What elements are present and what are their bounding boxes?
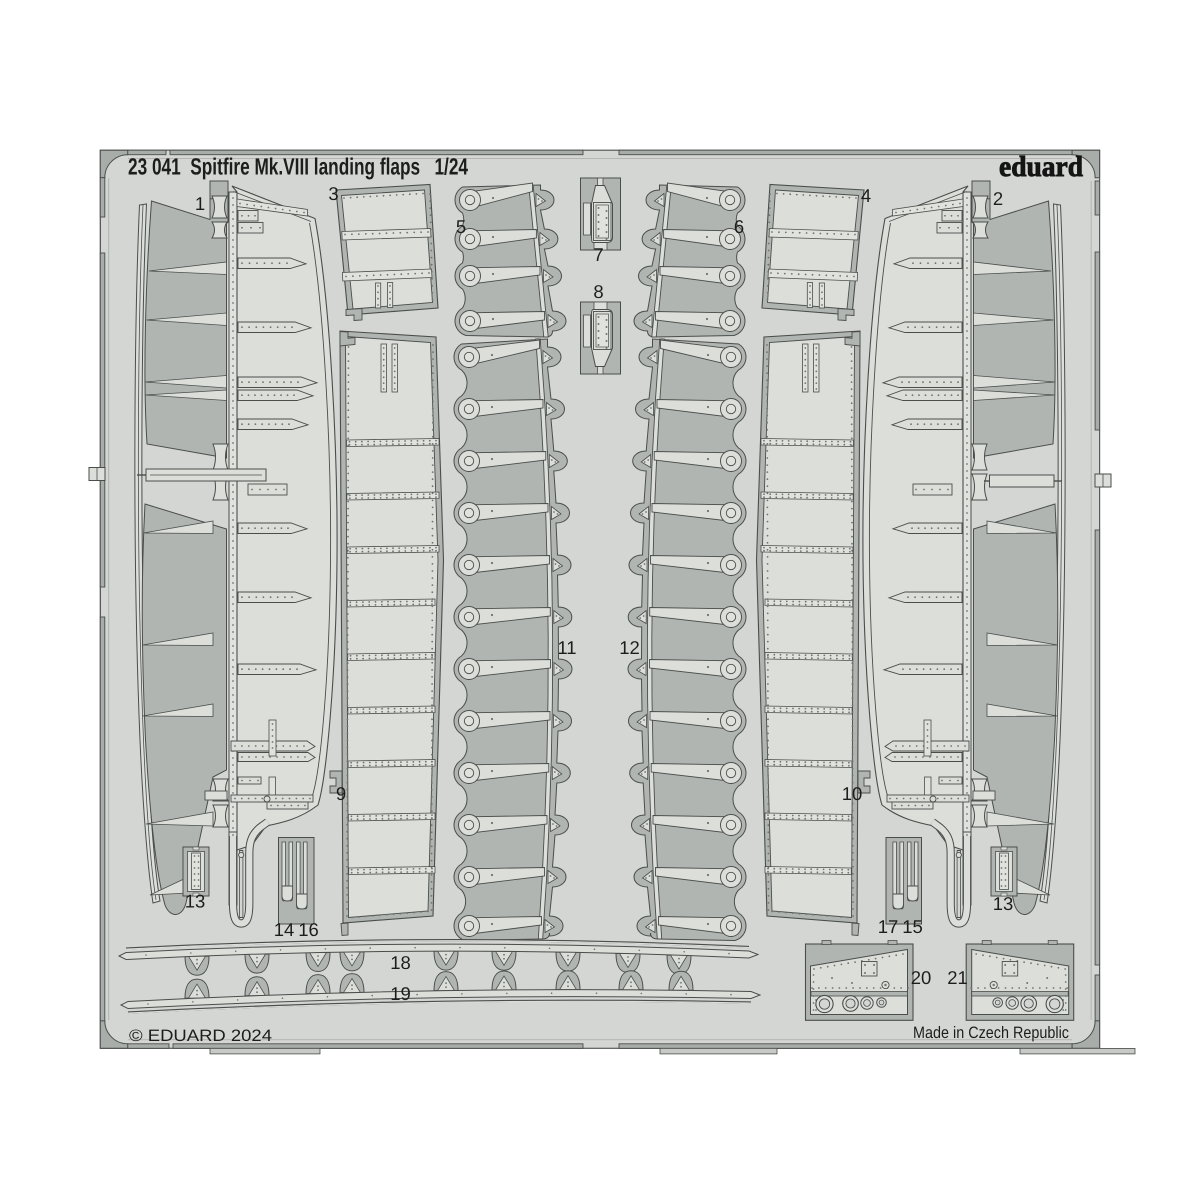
svg-text:2: 2 [993,188,1003,209]
svg-text:15: 15 [902,916,923,937]
svg-text:Made in Czech Republic: Made in Czech Republic [913,1024,1069,1042]
svg-text:17: 17 [878,916,899,937]
svg-text:13: 13 [993,893,1014,914]
svg-text:7: 7 [593,244,603,265]
svg-text:12: 12 [619,637,640,658]
svg-text:18: 18 [390,952,411,973]
svg-text:eduard: eduard [999,151,1083,183]
svg-text:16: 16 [298,919,319,940]
svg-text:5: 5 [456,216,466,237]
svg-text:10: 10 [842,783,863,804]
svg-text:9: 9 [336,783,346,804]
svg-text:19: 19 [390,983,411,1004]
svg-text:1: 1 [195,193,205,214]
svg-text:14: 14 [274,919,295,940]
svg-text:4: 4 [861,185,871,206]
svg-text:11: 11 [557,637,576,658]
svg-text:3: 3 [328,183,338,204]
svg-text:20: 20 [911,967,932,988]
svg-text:© EDUARD 2024: © EDUARD 2024 [129,1027,272,1045]
svg-text:23 041 Spitfire Mk.VIII landi: 23 041 Spitfire Mk.VIII landing flaps 1/… [128,154,468,180]
svg-text:8: 8 [593,281,603,302]
svg-text:21: 21 [947,967,968,988]
svg-text:6: 6 [734,216,744,237]
svg-text:13: 13 [185,891,206,912]
